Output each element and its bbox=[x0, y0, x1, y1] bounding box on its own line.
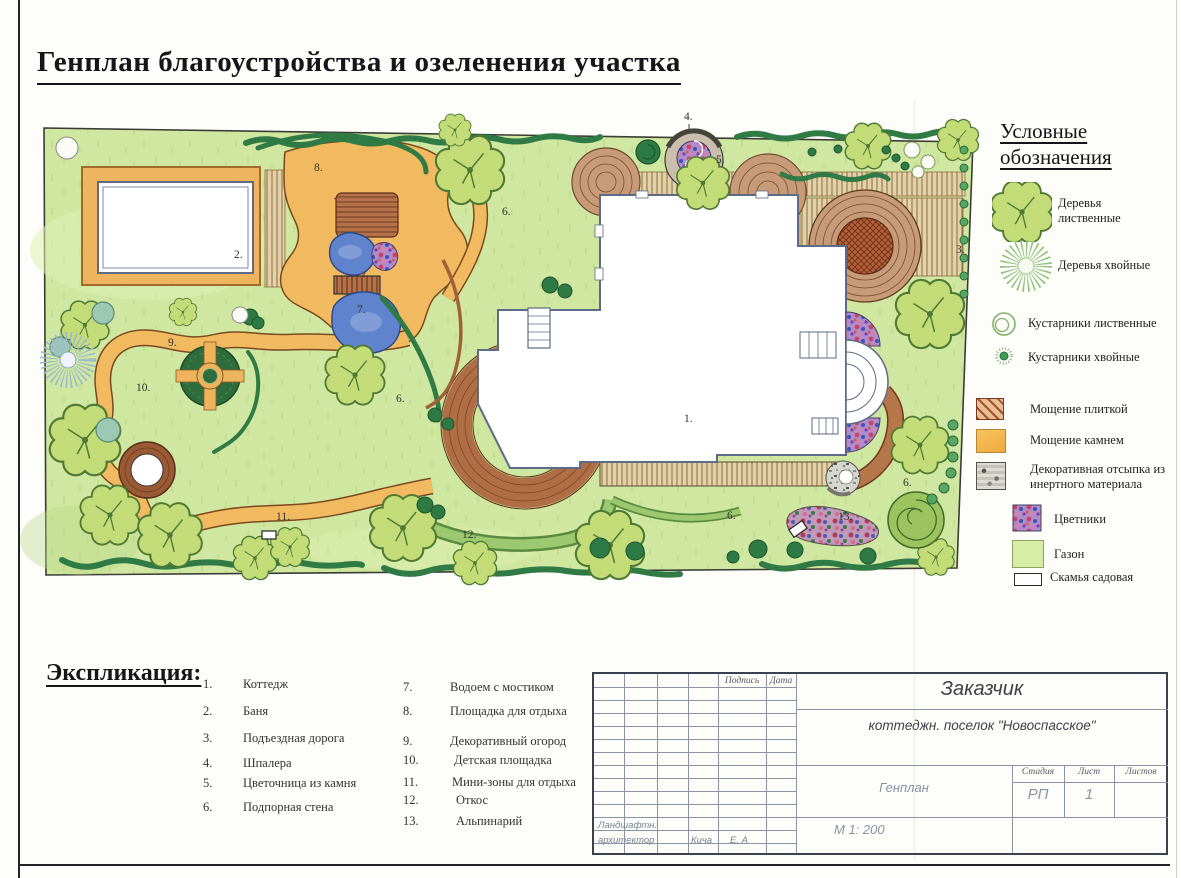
legend-item-label: Мощение плиткой bbox=[1030, 402, 1128, 417]
plan-marker: 10. bbox=[136, 382, 151, 394]
banya-building bbox=[82, 167, 285, 287]
legend-item-label: Цветники bbox=[1054, 512, 1106, 527]
explication-label: Откос bbox=[456, 793, 488, 808]
explication-label: Шпалера bbox=[243, 756, 292, 771]
mini-rest-circle bbox=[119, 442, 175, 498]
explication-num: 11. bbox=[403, 775, 418, 790]
explication-num: 6. bbox=[203, 800, 212, 815]
stage-label: Стадия bbox=[1012, 767, 1064, 777]
plan-marker: 7. bbox=[357, 304, 366, 316]
tile-paving-swatch bbox=[976, 398, 1004, 420]
drawing-title: Генплан bbox=[796, 780, 1012, 795]
stone-paving-swatch bbox=[976, 429, 1006, 453]
hedge-spiral-end bbox=[636, 140, 660, 164]
legend-item-label: Деревья хвойные bbox=[1058, 258, 1150, 273]
legend-item-label: Декоративная отсыпка из инертного матери… bbox=[1030, 462, 1181, 492]
deciduous-tree-icon bbox=[992, 182, 1052, 242]
inert-fill-swatch bbox=[976, 462, 1006, 490]
explication-label: Мини-зоны для отдыха bbox=[452, 775, 576, 790]
legend-heading-line1: Условные bbox=[1000, 118, 1112, 144]
signature-column-label: Подпись bbox=[718, 676, 766, 686]
stage-value: РП bbox=[1012, 786, 1064, 803]
plan-marker: 3. bbox=[956, 244, 965, 256]
plan-marker: 6. bbox=[727, 510, 736, 522]
explication-label: Альпинарий bbox=[456, 814, 522, 829]
plan-marker: 5. bbox=[716, 154, 725, 166]
explication-num: 3. bbox=[203, 731, 212, 746]
legend-item-label: Деревья лиственные bbox=[1058, 196, 1138, 226]
plan-marker: 2. bbox=[234, 249, 243, 261]
sheets-label: Листов bbox=[1114, 767, 1168, 777]
sheet-label: Лист bbox=[1064, 767, 1114, 777]
explication-num: 10. bbox=[403, 753, 419, 768]
explication-label: Цветочница из камня bbox=[243, 776, 356, 791]
pondside-flowerbed bbox=[372, 243, 398, 271]
legend-item-label: Кустарники лиственные bbox=[1028, 316, 1157, 331]
project-name: коттеджн. поселок "Новоспасское" bbox=[796, 718, 1168, 733]
explication-label: Коттедж bbox=[243, 677, 288, 692]
plan-marker: 11. bbox=[276, 511, 290, 523]
plan-marker: 6. bbox=[502, 206, 511, 218]
explication-label: Подъездная дорога bbox=[243, 731, 344, 746]
explication-label: Баня bbox=[243, 704, 268, 719]
bridge bbox=[334, 276, 380, 294]
plan-marker: 1. bbox=[684, 413, 693, 425]
explication-num: 9. bbox=[403, 734, 412, 749]
deciduous-shrub-icon bbox=[988, 308, 1020, 340]
explication-heading: Экспликация: bbox=[46, 660, 201, 687]
coniferous-shrub-icon bbox=[994, 346, 1014, 366]
lawn-swatch bbox=[1012, 540, 1044, 568]
explication-num: 5. bbox=[203, 776, 212, 791]
plan-marker: 6. bbox=[903, 477, 912, 489]
explication-label: Детская площадка bbox=[454, 753, 552, 768]
legend-item-label: Скамья садовая bbox=[1050, 570, 1133, 585]
author-initials: Е. А bbox=[730, 835, 748, 846]
plan-marker: 13. bbox=[838, 511, 853, 523]
explication-label: Площадка для отдыха bbox=[450, 704, 567, 719]
plan-marker: 8. bbox=[314, 162, 323, 174]
explication-label: Подпорная стена bbox=[243, 800, 333, 815]
legend-item-label: Кустарники хвойные bbox=[1028, 350, 1140, 365]
garden-bench-icon bbox=[1014, 573, 1042, 586]
explication-num: 7. bbox=[403, 680, 412, 695]
explication-num: 8. bbox=[403, 704, 412, 719]
plan-marker: 4. bbox=[684, 111, 693, 123]
west-entrance-steps bbox=[528, 308, 550, 348]
scale-value: М 1: 200 bbox=[834, 822, 984, 837]
explication-label: Водоем с мостиком bbox=[450, 680, 554, 695]
author-name: Кича bbox=[691, 835, 712, 846]
explication-num: 2. bbox=[203, 704, 212, 719]
explication-num: 13. bbox=[403, 814, 419, 829]
plan-marker: 6. bbox=[396, 393, 405, 405]
explication-label: Декоративный огород bbox=[450, 734, 566, 749]
author-role-line1: Ландшафтн. bbox=[598, 820, 657, 831]
flowerbed-swatch bbox=[1012, 504, 1042, 532]
client-label: Заказчик bbox=[796, 678, 1168, 701]
plan-marker: 12. bbox=[462, 529, 477, 541]
legend-heading-line2: обозначения bbox=[1000, 144, 1112, 170]
legend-item-label: Газон bbox=[1054, 547, 1084, 562]
drawing-sheet: Генплан благоустройства и озеленения уча… bbox=[0, 0, 1181, 878]
date-column-label: Дата bbox=[766, 676, 796, 686]
coniferous-tree-icon bbox=[994, 234, 1058, 298]
title-block: Подпись Дата Заказчик коттеджн. поселок … bbox=[592, 672, 1168, 855]
sheet-value: 1 bbox=[1064, 786, 1114, 803]
legend-heading: Условные обозначения bbox=[1000, 118, 1112, 170]
author-role-line2: архитектор bbox=[598, 835, 654, 846]
explication-num: 12. bbox=[403, 793, 419, 808]
explication-num: 4. bbox=[203, 756, 212, 771]
explication-num: 1. bbox=[203, 677, 212, 692]
legend-item-label: Мощение камнем bbox=[1030, 433, 1124, 448]
plan-marker: 9. bbox=[168, 337, 177, 349]
